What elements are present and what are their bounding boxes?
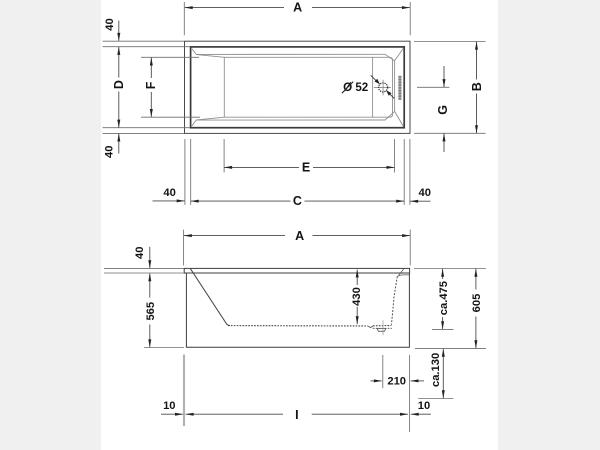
svg-text:430: 430 — [351, 287, 363, 306]
svg-text:G: G — [436, 105, 450, 115]
svg-text:B: B — [470, 82, 484, 91]
svg-text:605: 605 — [471, 294, 483, 313]
svg-text:A: A — [293, 1, 302, 15]
svg-text:10: 10 — [163, 400, 175, 412]
svg-text:A: A — [295, 229, 304, 243]
svg-text:ca.130: ca.130 — [430, 353, 442, 387]
svg-text:10: 10 — [418, 400, 430, 412]
svg-text:F: F — [144, 81, 158, 89]
svg-text:E: E — [302, 160, 310, 174]
svg-text:I: I — [295, 408, 298, 422]
svg-text:ca.475: ca.475 — [438, 281, 450, 315]
svg-text:565: 565 — [145, 302, 157, 321]
svg-text:40: 40 — [103, 146, 115, 158]
svg-text:40: 40 — [104, 18, 116, 30]
svg-text:40: 40 — [134, 246, 146, 258]
svg-text:C: C — [293, 194, 302, 208]
svg-text:40: 40 — [163, 187, 175, 199]
svg-text:D: D — [112, 80, 126, 89]
svg-text:210: 210 — [387, 376, 406, 388]
svg-text:40: 40 — [418, 187, 430, 199]
